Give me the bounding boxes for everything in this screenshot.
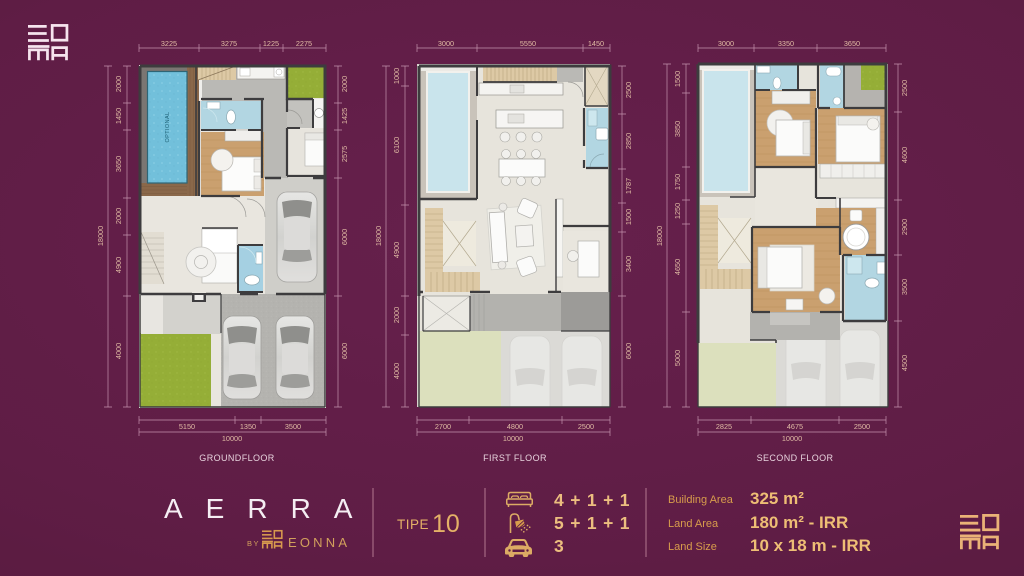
svg-text:4900: 4900 (114, 257, 123, 273)
svg-text:1750: 1750 (673, 174, 682, 190)
svg-text:5550: 5550 (520, 39, 536, 48)
svg-text:SECOND FLOOR: SECOND FLOOR (757, 453, 834, 463)
svg-text:325 m²: 325 m² (750, 489, 804, 508)
svg-text:10 x 18 m - IRR: 10 x 18 m - IRR (750, 536, 871, 555)
svg-text:3500: 3500 (285, 422, 301, 431)
svg-text:3850: 3850 (673, 121, 682, 137)
svg-text:10000: 10000 (503, 434, 523, 443)
svg-text:2850: 2850 (624, 133, 633, 149)
svg-text:5150: 5150 (179, 422, 195, 431)
svg-text:2000: 2000 (114, 76, 123, 92)
svg-text:18000: 18000 (655, 226, 664, 246)
svg-text:1450: 1450 (114, 108, 123, 124)
svg-text:3650: 3650 (114, 156, 123, 172)
svg-text:4 + 1 + 1: 4 + 1 + 1 (554, 490, 630, 510)
svg-text:2000: 2000 (114, 208, 123, 224)
svg-text:5000: 5000 (673, 350, 682, 366)
svg-text:6000: 6000 (340, 343, 349, 359)
svg-text:3000: 3000 (718, 39, 734, 48)
svg-text:2500: 2500 (624, 82, 633, 98)
svg-text:1350: 1350 (240, 422, 256, 431)
svg-text:6000: 6000 (624, 343, 633, 359)
svg-text:1450: 1450 (588, 39, 604, 48)
svg-text:1225: 1225 (263, 39, 279, 48)
svg-text:4000: 4000 (392, 363, 401, 379)
svg-text:1500: 1500 (673, 71, 682, 87)
svg-text:BY: BY (247, 539, 260, 548)
svg-text:3275: 3275 (221, 39, 237, 48)
svg-text:1250: 1250 (673, 203, 682, 219)
svg-text:10000: 10000 (222, 434, 242, 443)
svg-text:1787: 1787 (624, 178, 633, 194)
svg-text:3350: 3350 (778, 39, 794, 48)
svg-text:2575: 2575 (340, 146, 349, 162)
svg-text:EONNA: EONNA (288, 535, 350, 550)
svg-text:3400: 3400 (624, 256, 633, 272)
svg-text:OPTIONAL: OPTIONAL (165, 111, 171, 142)
svg-text:2500: 2500 (578, 422, 594, 431)
svg-text:1500: 1500 (624, 209, 633, 225)
svg-text:4675: 4675 (787, 422, 803, 431)
svg-text:1425: 1425 (340, 108, 349, 124)
svg-text:AERRA: AERRA (164, 493, 375, 524)
svg-text:4800: 4800 (507, 422, 523, 431)
svg-text:4650: 4650 (673, 259, 682, 275)
svg-text:2500: 2500 (854, 422, 870, 431)
svg-text:2000: 2000 (340, 76, 349, 92)
svg-text:3650: 3650 (844, 39, 860, 48)
svg-text:3000: 3000 (438, 39, 454, 48)
svg-text:10: 10 (432, 510, 460, 538)
svg-text:GROUNDFLOOR: GROUNDFLOOR (199, 453, 275, 463)
svg-text:4900: 4900 (392, 242, 401, 258)
svg-text:4500: 4500 (900, 355, 909, 371)
svg-text:5 + 1 + 1: 5 + 1 + 1 (554, 513, 630, 533)
svg-text:2000: 2000 (392, 307, 401, 323)
svg-text:3500: 3500 (900, 279, 909, 295)
svg-text:3: 3 (554, 536, 565, 556)
svg-text:18000: 18000 (374, 226, 383, 246)
svg-text:Building Area: Building Area (668, 494, 734, 506)
svg-text:4000: 4000 (114, 343, 123, 359)
svg-text:FIRST FLOOR: FIRST FLOOR (483, 453, 547, 463)
svg-text:2275: 2275 (296, 39, 312, 48)
svg-text:1000: 1000 (392, 68, 401, 84)
svg-text:2900: 2900 (900, 219, 909, 235)
svg-text:Land Area: Land Area (668, 518, 719, 530)
svg-text:TIPE: TIPE (397, 517, 429, 532)
svg-text:2825: 2825 (716, 422, 732, 431)
svg-text:18000: 18000 (96, 226, 105, 246)
svg-text:2700: 2700 (435, 422, 451, 431)
svg-text:6100: 6100 (392, 137, 401, 153)
svg-text:2500: 2500 (900, 80, 909, 96)
svg-text:10000: 10000 (782, 434, 802, 443)
svg-text:4600: 4600 (900, 147, 909, 163)
svg-text:3225: 3225 (161, 39, 177, 48)
svg-text:Land Size: Land Size (668, 541, 717, 553)
svg-text:180 m² - IRR: 180 m² - IRR (750, 513, 848, 532)
svg-text:6000: 6000 (340, 229, 349, 245)
